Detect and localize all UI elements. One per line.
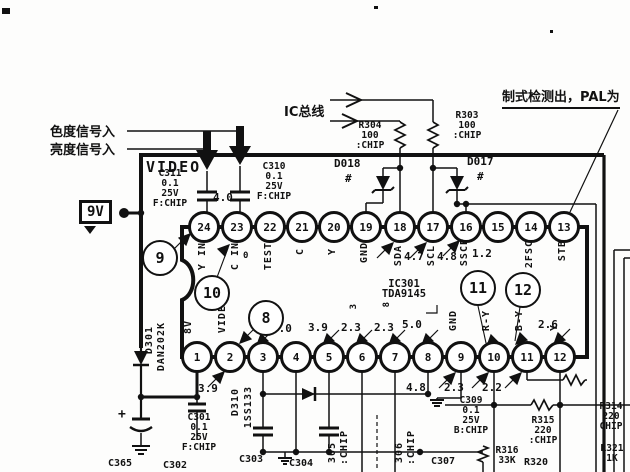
pin2-voltage-below: 3.9 — [198, 382, 218, 395]
res-r320-label: R320 — [524, 457, 548, 468]
pin21-label: C — [295, 248, 306, 255]
diode-d301-part: DAN202K — [156, 322, 167, 371]
callout-12: 12 — [505, 272, 541, 308]
r314-type: CHIP — [591, 422, 630, 432]
pin11-voltage-below: 2.2 — [482, 381, 502, 394]
ic-pin-20: 20 — [318, 211, 350, 243]
res-r303-label: R303 100 :CHIP — [443, 111, 491, 141]
ic-bus-label: IC总线 — [284, 101, 324, 120]
c365-plus-mark: + — [118, 407, 126, 422]
c309-type: B:CHIP — [445, 426, 497, 436]
pin11-voltage-above: 2.6 — [538, 318, 558, 331]
d017-mark: # — [477, 170, 484, 183]
diode-d017-label: D017 — [467, 155, 494, 168]
ic-pin-7: 7 — [379, 341, 411, 373]
pin23-label: C IN — [230, 242, 241, 270]
cap-c306-ref: 306 — [394, 442, 405, 463]
cap-c311-label: C311 0.1 25V F:CHIP — [143, 169, 197, 209]
r315-type: :CHIP — [518, 436, 568, 446]
ic-pin-6: 6 — [346, 341, 378, 373]
schematic-page: 色度信号入 亮度信号入 IC总线 制式检测出，PAL为 9V VIDEO 24 … — [0, 0, 630, 472]
c301-type: F:CHIP — [176, 443, 222, 453]
cap-c310-label: C310 0.1 25V F:CHIP — [249, 162, 299, 202]
ic-pin-24: 24 — [188, 211, 220, 243]
ic-pin-15: 15 — [482, 211, 514, 243]
diode-d310-part: 1SS133 — [243, 386, 254, 428]
pin17-voltage: 4.8 — [437, 250, 457, 263]
callout-10: 10 — [194, 275, 230, 311]
ic-pin-14: 14 — [515, 211, 547, 243]
chroma-input-label: 色度信号入 — [50, 121, 115, 140]
pin9-voltage-below: 4.8 — [406, 381, 426, 394]
ic-part-text: TDA9145 — [371, 289, 437, 299]
cap-c306-type: :CHIP — [406, 430, 417, 465]
pin18-voltage: 4.7 — [404, 250, 424, 263]
ic-pin-22: 22 — [254, 211, 286, 243]
ic-pin-18: 18 — [384, 211, 416, 243]
pin23-zero-mark: 0 — [243, 251, 248, 261]
diode-d301-ref: D301 — [144, 326, 155, 354]
cap-c301-label: C301 0.1 25V F:CHIP — [176, 413, 222, 453]
ic-pin-11: 11 — [511, 341, 543, 373]
pin7-voltage: 2.3 — [374, 321, 394, 334]
pin6-voltage: 2.3 — [341, 321, 361, 334]
cap-c303-label: C303 — [239, 454, 263, 465]
c311-type: F:CHIP — [143, 199, 197, 209]
res-r304-label: R304 100 :CHIP — [347, 121, 393, 151]
diode-d310-ref: D310 — [230, 388, 241, 416]
pin9-label: GND — [448, 310, 459, 331]
pin13-label: STB — [557, 240, 568, 261]
pin19-label: GND — [359, 242, 370, 263]
pin10-label: R-Y — [481, 310, 492, 331]
callout-11: 11 — [460, 270, 496, 306]
cap-c307-label: C307 — [431, 456, 455, 467]
cap-c365-label: C365 — [108, 458, 132, 469]
ic-pin-2: 2 — [214, 341, 246, 373]
pin10-voltage-below: 2.3 — [444, 381, 464, 394]
pin14-label: 2FSC — [524, 240, 535, 268]
pin8-voltage: 5.0 — [402, 318, 422, 331]
cap-c304-label: C304 — [289, 458, 313, 469]
ic-pin-12: 12 — [544, 341, 576, 373]
ic-pin-17: 17 — [417, 211, 449, 243]
pal-detect-note: 制式检测出，PAL为 — [502, 86, 620, 109]
c310-type: F:CHIP — [249, 192, 299, 202]
pin7-mark: 8 — [382, 301, 392, 307]
pin24-label: Y IN — [197, 242, 208, 270]
luma-input-label: 亮度信号入 — [50, 139, 115, 158]
supply-9v-badge: 9V — [79, 200, 112, 224]
r316-value: 33K — [486, 456, 528, 466]
pin20-label: Y — [327, 248, 338, 255]
ic-pin-9: 9 — [445, 341, 477, 373]
ic-pin-10: 10 — [478, 341, 510, 373]
res-r315-label: R315 220 :CHIP — [518, 416, 568, 446]
ic-pin-8: 8 — [412, 341, 444, 373]
ic-pin-19: 19 — [350, 211, 382, 243]
ic-pin-1: 1 — [181, 341, 213, 373]
pin23-voltage: 4.0 — [213, 191, 233, 204]
ic-pin-4: 4 — [280, 341, 312, 373]
ic-pin-23: 23 — [221, 211, 253, 243]
pin1-label: 8V — [183, 320, 194, 334]
callout-9: 9 — [142, 240, 178, 276]
d018-mark: # — [345, 172, 352, 185]
res-r316-label: R316 33K — [486, 446, 528, 466]
pin17-label: SCL — [426, 245, 437, 266]
cap-c305-ref: 305 — [327, 442, 338, 463]
cap-c305-type: :CHIP — [339, 430, 350, 465]
ic-pin-13: 13 — [548, 211, 580, 243]
cap-c309-label: C309 0.1 25V B:CHIP — [445, 396, 497, 436]
pin22-label: TEST — [263, 242, 274, 270]
cap-c302-label: C302 — [163, 460, 187, 471]
ic-pin-3: 3 — [247, 341, 279, 373]
r303-type: :CHIP — [443, 131, 491, 141]
pin5-voltage: 3.9 — [308, 321, 328, 334]
diode-d018-label: D018 — [334, 157, 361, 170]
res-r314-label: R314 220 CHIP — [591, 402, 630, 432]
res-r321-label: R321 1K — [593, 444, 630, 464]
callout-8: 8 — [248, 300, 284, 336]
ic-reference: IC301 TDA9145 — [371, 279, 437, 299]
pin18-label: SDA — [393, 245, 404, 266]
pin6-mark: 3 — [349, 303, 359, 309]
ic-pin-5: 5 — [313, 341, 345, 373]
ic-pin-21: 21 — [286, 211, 318, 243]
r304-type: :CHIP — [347, 141, 393, 151]
scan-marks — [2, 6, 553, 33]
r321-value: 1K — [593, 454, 630, 464]
pin16-label: SSCP — [459, 238, 470, 266]
pin11-label: B-Y — [514, 310, 525, 331]
pin16-voltage: 1.2 — [472, 247, 492, 260]
